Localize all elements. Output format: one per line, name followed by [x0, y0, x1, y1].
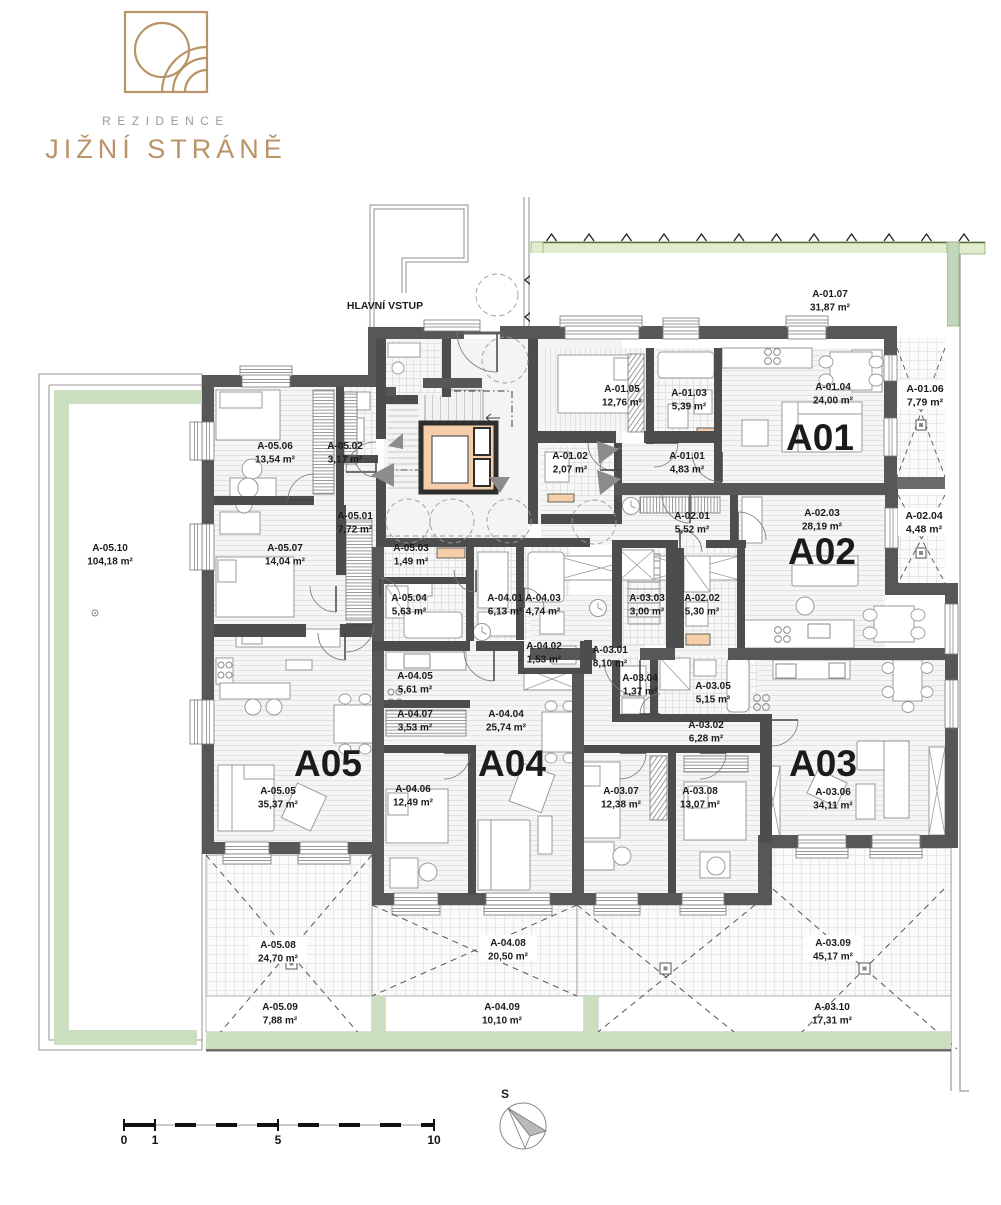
svg-text:3,53 m²: 3,53 m² — [398, 723, 433, 734]
svg-text:A04: A04 — [478, 743, 546, 784]
svg-text:14,04 m²: 14,04 m² — [265, 557, 306, 568]
svg-text:1: 1 — [152, 1133, 159, 1147]
svg-text:A-03.07: A-03.07 — [603, 786, 639, 797]
svg-text:A-05.04: A-05.04 — [391, 593, 427, 604]
svg-text:35,37 m²: 35,37 m² — [258, 800, 299, 811]
svg-text:A-05.03: A-05.03 — [393, 543, 429, 554]
svg-text:5,61 m²: 5,61 m² — [398, 685, 433, 696]
svg-text:A01: A01 — [786, 417, 854, 458]
svg-text:A-05.10: A-05.10 — [92, 543, 128, 554]
svg-text:A-02.03: A-02.03 — [804, 508, 840, 519]
svg-text:A-05.07: A-05.07 — [267, 543, 303, 554]
svg-text:8,10 m²: 8,10 m² — [593, 659, 628, 670]
svg-text:2,07 m²: 2,07 m² — [553, 465, 588, 476]
svg-text:A-05.06: A-05.06 — [257, 441, 293, 452]
svg-text:1,37 m²: 1,37 m² — [623, 687, 658, 698]
svg-text:A-02.02: A-02.02 — [684, 593, 720, 604]
svg-text:12,38 m²: 12,38 m² — [601, 800, 642, 811]
svg-text:45,17 m²: 45,17 m² — [813, 952, 854, 963]
svg-text:25,74 m²: 25,74 m² — [486, 723, 527, 734]
svg-text:A-01.02: A-01.02 — [552, 451, 588, 462]
svg-text:A-05.02: A-05.02 — [327, 441, 363, 452]
svg-text:HLAVNÍ VSTUP: HLAVNÍ VSTUP — [347, 299, 423, 312]
svg-text:A-03.04: A-03.04 — [622, 673, 658, 684]
svg-text:S: S — [501, 1087, 509, 1101]
svg-text:A-01.07: A-01.07 — [812, 289, 848, 300]
svg-text:A-01.03: A-01.03 — [671, 388, 707, 399]
svg-text:3,17 m²: 3,17 m² — [328, 455, 363, 466]
svg-text:A-04.09: A-04.09 — [484, 1002, 520, 1013]
svg-text:7,88 m²: 7,88 m² — [263, 1016, 298, 1027]
svg-text:A-02.01: A-02.01 — [674, 511, 710, 522]
svg-text:A-03.10: A-03.10 — [814, 1002, 850, 1013]
svg-text:A-04.07: A-04.07 — [397, 709, 433, 720]
svg-text:6,28 m²: 6,28 m² — [689, 734, 724, 745]
svg-text:A-03.05: A-03.05 — [695, 681, 731, 692]
svg-text:10: 10 — [427, 1133, 441, 1147]
svg-text:24,70 m²: 24,70 m² — [258, 954, 299, 965]
svg-text:A05: A05 — [294, 743, 362, 784]
svg-text:A-05.05: A-05.05 — [260, 786, 296, 797]
svg-text:3,00 m²: 3,00 m² — [630, 607, 665, 618]
svg-text:1,49 m²: 1,49 m² — [394, 557, 429, 568]
svg-text:5,39 m²: 5,39 m² — [672, 402, 707, 413]
svg-text:A-03.08: A-03.08 — [682, 786, 718, 797]
svg-text:20,50 m²: 20,50 m² — [488, 952, 529, 963]
svg-text:A-05.01: A-05.01 — [337, 511, 373, 522]
svg-text:A-04.05: A-04.05 — [397, 671, 433, 682]
svg-text:0: 0 — [121, 1133, 128, 1147]
svg-text:A-01.04: A-01.04 — [815, 382, 851, 393]
svg-text:4,74 m²: 4,74 m² — [526, 607, 561, 618]
svg-text:A-05.09: A-05.09 — [262, 1002, 298, 1013]
svg-text:4,83 m²: 4,83 m² — [670, 465, 705, 476]
svg-text:17,31 m²: 17,31 m² — [812, 1016, 853, 1027]
svg-text:5,63 m²: 5,63 m² — [392, 607, 427, 618]
svg-text:A03: A03 — [789, 743, 857, 784]
svg-text:A-04.06: A-04.06 — [395, 784, 431, 795]
svg-text:24,00 m²: 24,00 m² — [813, 396, 854, 407]
svg-text:34,11 m²: 34,11 m² — [813, 801, 853, 812]
svg-text:A02: A02 — [788, 531, 856, 572]
svg-text:A-05.08: A-05.08 — [260, 940, 296, 951]
svg-text:12,76 m²: 12,76 m² — [602, 398, 643, 409]
svg-text:6,13 m²: 6,13 m² — [488, 607, 523, 618]
svg-text:5: 5 — [275, 1133, 282, 1147]
svg-text:5,52 m²: 5,52 m² — [675, 525, 710, 536]
svg-text:REZIDENCE: REZIDENCE — [102, 114, 230, 128]
svg-text:13,54 m²: 13,54 m² — [255, 455, 296, 466]
svg-text:1,53 m²: 1,53 m² — [527, 655, 562, 666]
svg-text:A-03.09: A-03.09 — [815, 938, 851, 949]
svg-text:13,07 m²: 13,07 m² — [680, 800, 721, 811]
svg-text:10,10 m²: 10,10 m² — [482, 1016, 523, 1027]
svg-text:A-04.08: A-04.08 — [490, 938, 526, 949]
svg-text:A-03.01: A-03.01 — [592, 645, 628, 656]
svg-text:12,49 m²: 12,49 m² — [393, 798, 434, 809]
svg-text:A-03.03: A-03.03 — [629, 593, 665, 604]
svg-text:5,15 m²: 5,15 m² — [696, 695, 731, 706]
svg-text:A-04.04: A-04.04 — [488, 709, 524, 720]
svg-text:JIŽNÍ STRÁNĚ: JIŽNÍ STRÁNĚ — [45, 133, 287, 164]
svg-text:A-03.06: A-03.06 — [815, 787, 851, 798]
svg-text:A-01.06: A-01.06 — [906, 383, 944, 395]
svg-text:104,18 m²: 104,18 m² — [87, 557, 133, 568]
svg-text:A-04.02: A-04.02 — [526, 641, 562, 652]
svg-text:A-04.01: A-04.01 — [487, 593, 523, 604]
svg-text:31,87 m²: 31,87 m² — [810, 303, 851, 314]
svg-text:A-01.05: A-01.05 — [604, 384, 640, 395]
svg-text:A-03.02: A-03.02 — [688, 720, 724, 731]
svg-text:A-04.03: A-04.03 — [525, 593, 561, 604]
svg-text:A-01.01: A-01.01 — [669, 451, 705, 462]
svg-text:5,30 m²: 5,30 m² — [685, 607, 720, 618]
svg-text:7,79 m²: 7,79 m² — [907, 397, 944, 409]
svg-text:A-02.04: A-02.04 — [905, 510, 943, 522]
svg-text:4,48 m²: 4,48 m² — [906, 524, 943, 536]
svg-text:7,72 m²: 7,72 m² — [338, 525, 373, 536]
